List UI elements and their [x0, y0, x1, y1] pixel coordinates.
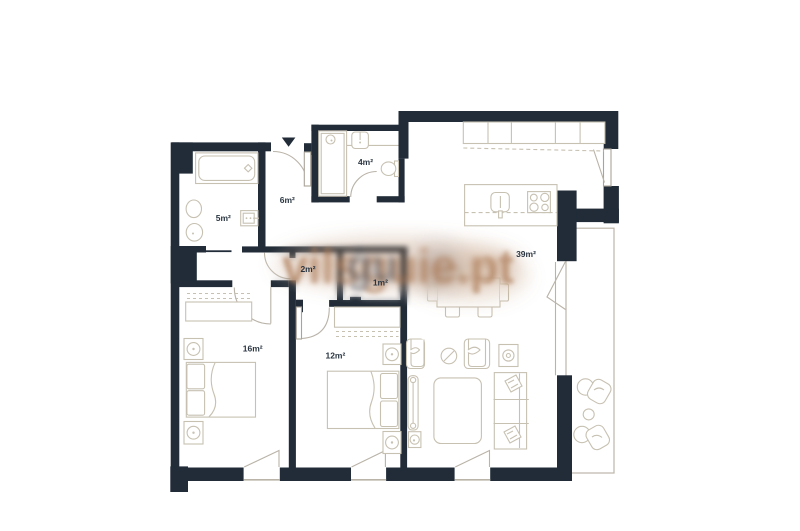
- svg-text:6m²: 6m²: [280, 195, 295, 205]
- svg-text:5m²: 5m²: [216, 213, 231, 223]
- svg-text:39m²: 39m²: [516, 249, 536, 259]
- svg-text:1m²: 1m²: [373, 278, 388, 288]
- svg-text:12m²: 12m²: [325, 350, 345, 360]
- svg-text:4m²: 4m²: [358, 157, 373, 167]
- svg-text:16m²: 16m²: [243, 343, 263, 353]
- svg-text:2m²: 2m²: [300, 264, 315, 274]
